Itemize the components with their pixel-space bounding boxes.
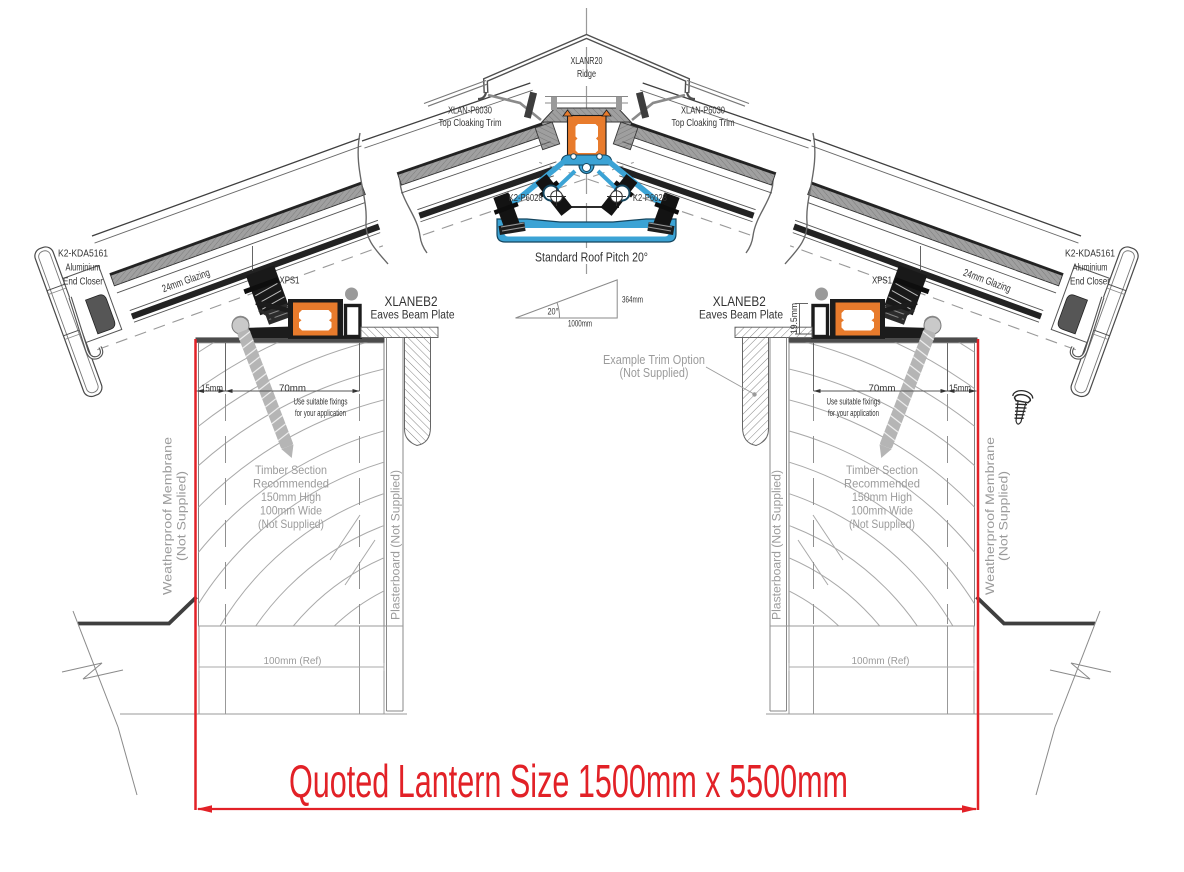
- svg-text:XLAN-P6030: XLAN-P6030: [448, 105, 492, 117]
- svg-text:K2-P6028: K2-P6028: [633, 192, 667, 204]
- svg-text:70mm: 70mm: [869, 383, 896, 395]
- svg-text:100mm (Ref): 100mm (Ref): [264, 656, 322, 667]
- svg-text:364mm: 364mm: [622, 295, 643, 305]
- svg-text:(Not Supplied): (Not Supplied): [258, 517, 324, 531]
- svg-text:Timber Section: Timber Section: [846, 463, 918, 477]
- svg-text:XLANEB2: XLANEB2: [385, 294, 438, 309]
- svg-text:Plasterboard (Not Supplied): Plasterboard (Not Supplied): [391, 470, 403, 620]
- svg-text:Timber Section: Timber Section: [255, 463, 327, 477]
- svg-text:Eaves Beam Plate: Eaves Beam Plate: [371, 310, 455, 322]
- svg-text:End Closer: End Closer: [1070, 276, 1110, 288]
- svg-text:for your application: for your application: [828, 408, 879, 418]
- svg-text:XLANR20: XLANR20: [571, 55, 603, 67]
- svg-text:150mm High: 150mm High: [852, 490, 912, 504]
- svg-text:XLANEB2: XLANEB2: [713, 294, 766, 309]
- svg-text:Quoted Lantern Size 1500mm x 5: Quoted Lantern Size 1500mm x 5500mm: [289, 755, 848, 807]
- svg-text:K2-KDA5161: K2-KDA5161: [58, 248, 108, 260]
- svg-text:(Not Supplied): (Not Supplied): [620, 365, 689, 380]
- svg-text:(Not Supplied): (Not Supplied): [849, 517, 915, 531]
- svg-text:XLAN-P6030: XLAN-P6030: [681, 105, 725, 117]
- svg-text:XPS1: XPS1: [280, 275, 300, 287]
- svg-text:Standard Roof Pitch 20°: Standard Roof Pitch 20°: [535, 251, 648, 265]
- svg-text:Weatherproof Membrane: Weatherproof Membrane: [163, 437, 175, 595]
- svg-text:Ridge: Ridge: [577, 68, 596, 80]
- svg-text:Eaves Beam Plate: Eaves Beam Plate: [699, 310, 783, 322]
- svg-text:Top Cloaking Trim: Top Cloaking Trim: [439, 117, 502, 129]
- svg-text:Top Cloaking Trim: Top Cloaking Trim: [672, 117, 735, 129]
- svg-text:Aluminium: Aluminium: [66, 262, 101, 274]
- svg-text:Weatherproof Membrane: Weatherproof Membrane: [985, 437, 997, 595]
- svg-text:K2-P6028: K2-P6028: [509, 192, 543, 204]
- svg-text:100mm Wide: 100mm Wide: [260, 504, 322, 518]
- svg-text:1000mm: 1000mm: [568, 319, 592, 329]
- svg-text:100mm (Ref): 100mm (Ref): [852, 656, 910, 667]
- svg-text:100mm Wide: 100mm Wide: [851, 504, 913, 518]
- svg-text:Use suitable fixings: Use suitable fixings: [294, 397, 348, 407]
- svg-text:Recommended: Recommended: [844, 477, 920, 491]
- svg-text:XPS1: XPS1: [872, 275, 892, 287]
- svg-text:K2-KDA5161: K2-KDA5161: [1065, 248, 1115, 260]
- svg-text:20°: 20°: [548, 307, 559, 317]
- svg-text:Plasterboard (Not Supplied): Plasterboard (Not Supplied): [772, 470, 784, 620]
- svg-text:19.5mm: 19.5mm: [789, 303, 799, 334]
- svg-text:Use suitable fixings: Use suitable fixings: [827, 397, 881, 407]
- svg-text:End Closer: End Closer: [63, 276, 103, 288]
- svg-text:15mm: 15mm: [201, 383, 223, 395]
- svg-text:for your application: for your application: [295, 408, 346, 418]
- svg-text:150mm High: 150mm High: [261, 490, 321, 504]
- svg-text:(Not Supplied): (Not Supplied): [177, 471, 189, 561]
- svg-text:70mm: 70mm: [279, 383, 306, 395]
- svg-text:(Not Supplied): (Not Supplied): [999, 471, 1011, 561]
- svg-text:15mm: 15mm: [949, 383, 971, 395]
- svg-text:Recommended: Recommended: [253, 477, 329, 491]
- svg-text:Aluminium: Aluminium: [1073, 262, 1108, 274]
